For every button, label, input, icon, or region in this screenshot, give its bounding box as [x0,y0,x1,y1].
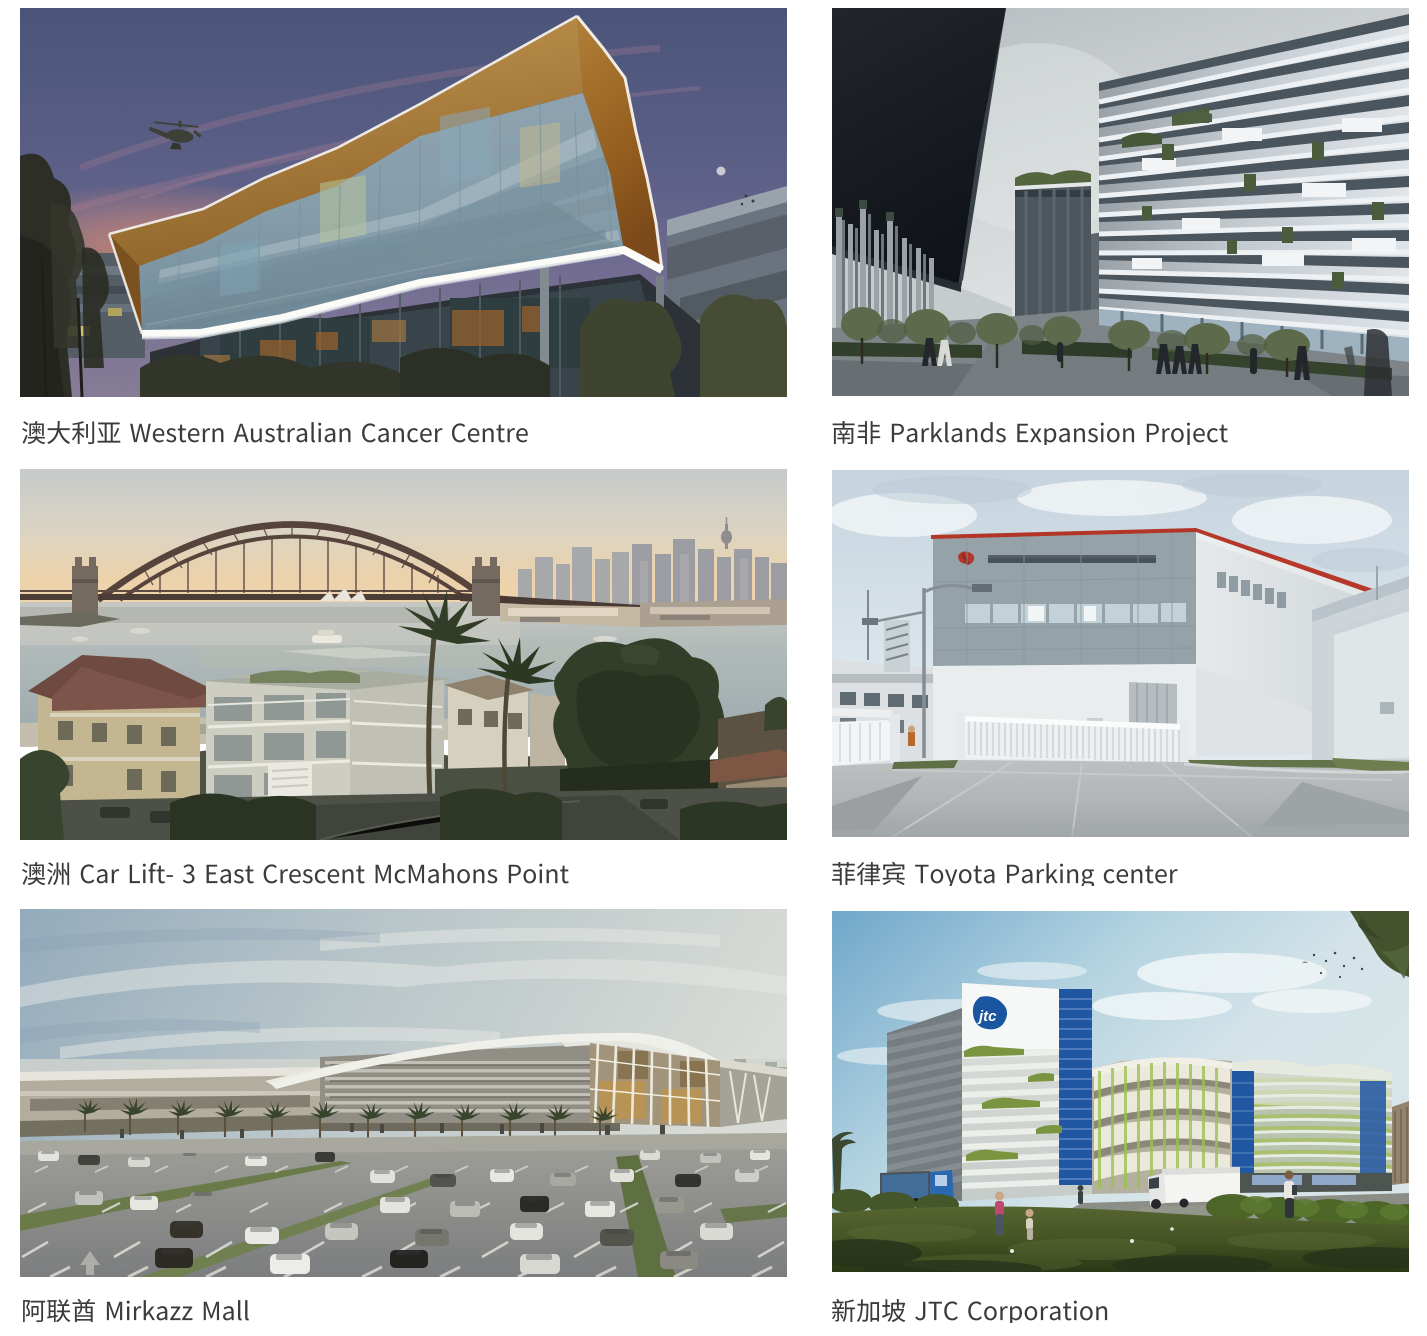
svg-text:jtc: jtc [977,1008,997,1025]
